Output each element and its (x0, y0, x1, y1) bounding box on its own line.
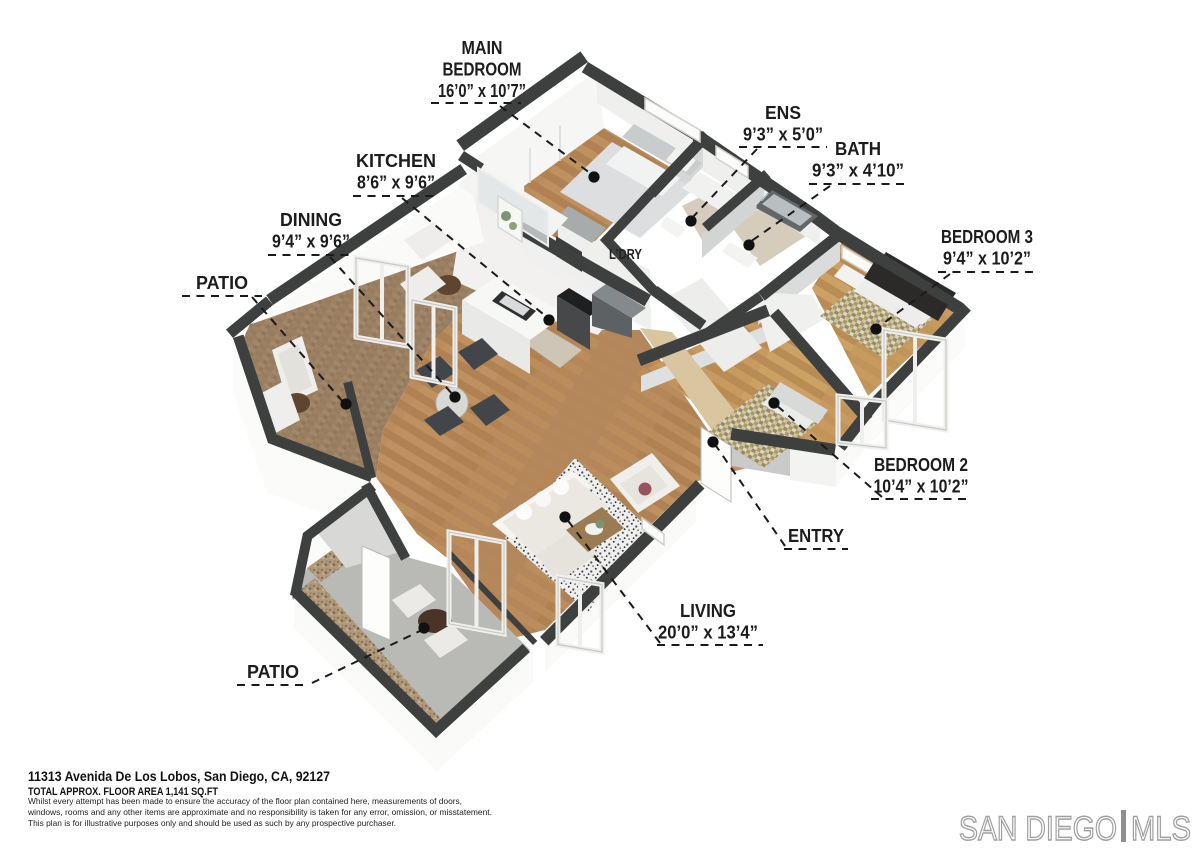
svg-text:BEDROOM: BEDROOM (443, 59, 522, 80)
svg-text:9’3” x 5’0”: 9’3” x 5’0” (743, 124, 823, 145)
svg-text:BEDROOM 2: BEDROOM 2 (874, 454, 968, 475)
svg-text:windows, rooms and any other i: windows, rooms and any other items are a… (27, 807, 492, 817)
svg-text:L’DRY: L’DRY (609, 247, 642, 263)
svg-text:8’6” x 9’6”: 8’6” x 9’6” (357, 172, 435, 193)
svg-text:16’0” x 10’7”: 16’0” x 10’7” (438, 80, 526, 101)
svg-text:PATIO: PATIO (196, 272, 248, 293)
svg-text:LIVING: LIVING (680, 600, 736, 621)
svg-text:BEDROOM 3: BEDROOM 3 (941, 226, 1033, 247)
svg-text:SAN DIEGO: SAN DIEGO (959, 810, 1117, 848)
svg-text:9’3” x 4’10”: 9’3” x 4’10” (812, 160, 904, 181)
svg-text:This plan is for illustrative: This plan is for illustrative purposes o… (28, 818, 396, 828)
svg-text:20’0” x 13’4”: 20’0” x 13’4” (658, 622, 758, 643)
svg-text:KITCHEN: KITCHEN (356, 150, 436, 171)
svg-text:11313 Avenida De Los Lobos, Sa: 11313 Avenida De Los Lobos, San Diego, C… (28, 768, 330, 784)
svg-text:DINING: DINING (280, 209, 342, 230)
svg-text:ENTRY: ENTRY (788, 525, 845, 546)
svg-text:PATIO: PATIO (247, 661, 299, 682)
svg-text:9’4” x 9’6”: 9’4” x 9’6” (272, 231, 350, 252)
svg-text:Whilst every attempt has been: Whilst every attempt has been made to en… (28, 796, 462, 806)
svg-text:10’4” x 10’2”: 10’4” x 10’2” (874, 476, 969, 497)
svg-text:9’4” x 10’2”: 9’4” x 10’2” (943, 248, 1031, 269)
svg-text:BATH: BATH (835, 138, 881, 159)
svg-text:MLS: MLS (1131, 810, 1191, 848)
svg-text:ENS: ENS (765, 102, 801, 123)
svg-text:MAIN: MAIN (462, 37, 503, 58)
